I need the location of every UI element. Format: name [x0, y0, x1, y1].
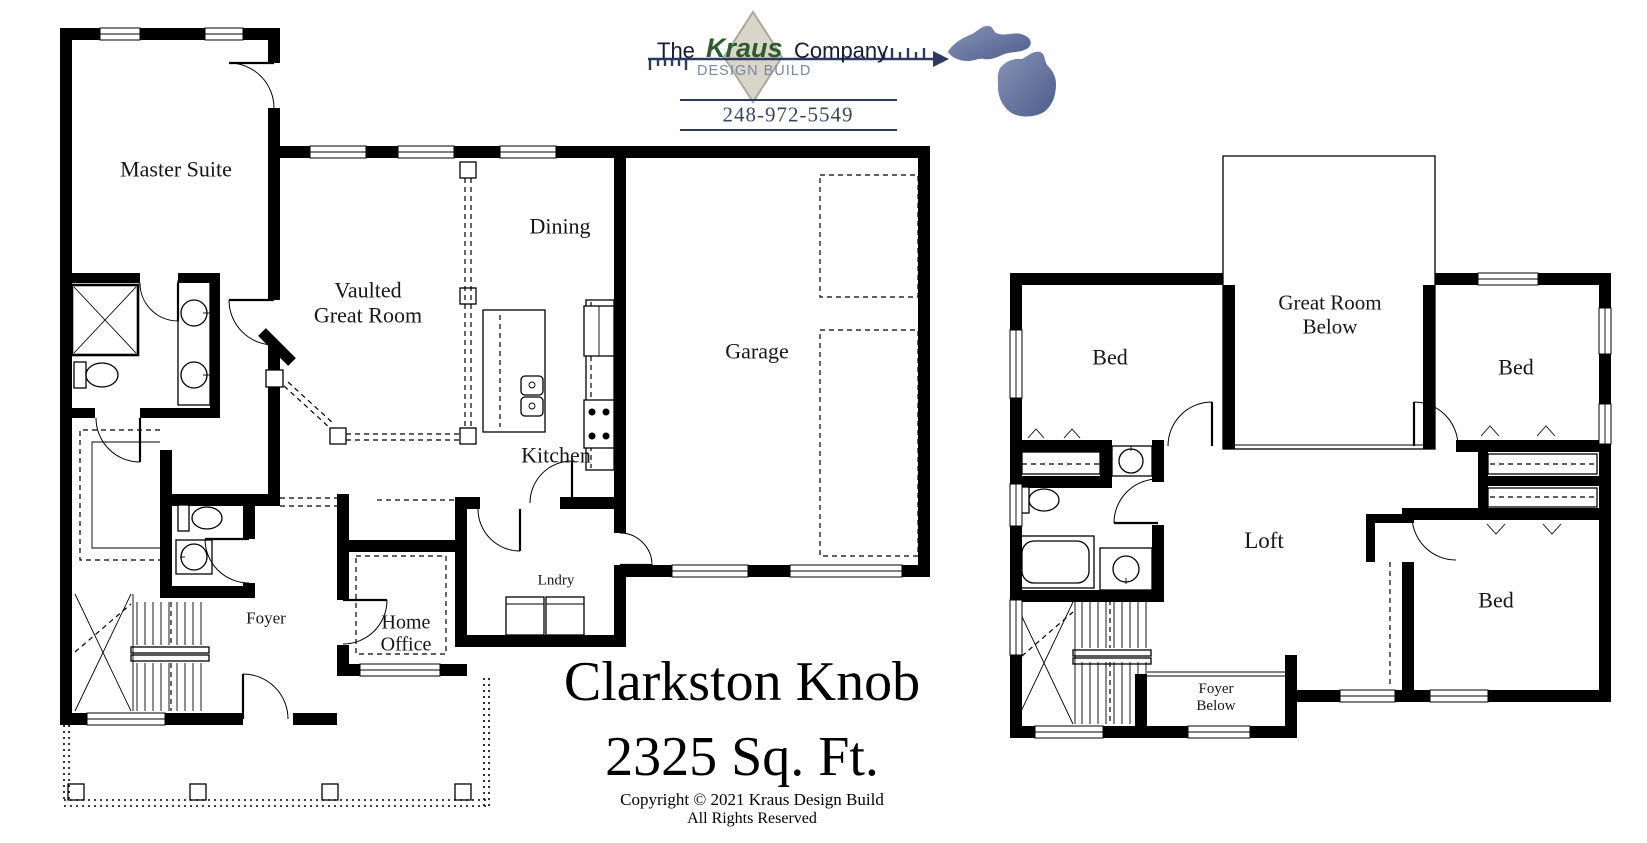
room-label-home-office: Home Office	[381, 612, 432, 657]
room-label-kitchen: Kitchen	[521, 444, 591, 469]
floor-plan-sheet: The Kraus Company DESIGN BUILD 248-972-5…	[0, 0, 1647, 843]
master-bath-fixtures	[72, 281, 210, 405]
second-floor-plan	[1010, 156, 1611, 738]
room-label-bed-top-right: Bed	[1498, 356, 1533, 381]
laundry-fixtures	[506, 597, 584, 635]
front-porch-outline	[64, 678, 489, 806]
room-label-great-room: Vaulted Great Room	[314, 278, 422, 327]
room-label-bed-bottom-right: Bed	[1478, 589, 1513, 614]
room-label-laundry: Lndry	[538, 573, 575, 590]
arrow-head-icon	[933, 51, 949, 67]
room-label-loft: Loft	[1244, 528, 1284, 554]
michigan-state-icon	[948, 26, 1056, 117]
room-label-dining: Dining	[529, 215, 590, 240]
second-floor-stairs	[1015, 600, 1151, 724]
first-floor-windows	[87, 28, 902, 725]
plan-area-title: 2325 Sq. Ft.	[605, 725, 879, 789]
room-label-foyer-below: Foyer Below	[1196, 681, 1235, 715]
plan-name-title: Clarkston Knob	[564, 650, 920, 714]
second-floor-doors	[1114, 402, 1458, 560]
brand-tagline: DESIGN BUILD	[697, 63, 811, 79]
brand-phone: 248-972-5549	[723, 103, 854, 128]
brand-the: The	[657, 38, 695, 64]
room-label-foyer: Foyer	[246, 608, 286, 627]
copyright-line: Copyright © 2021 Kraus Design Build	[620, 790, 884, 810]
rights-line: All Rights Reserved	[687, 810, 817, 828]
room-label-garage: Garage	[725, 340, 789, 365]
room-label-great-room-below: Great Room Below	[1278, 291, 1381, 338]
room-label-master-suite: Master Suite	[120, 158, 232, 183]
first-floor-stairs	[75, 594, 209, 711]
brand-kraus: Kraus	[706, 33, 783, 64]
second-floor-bath-fixtures	[1017, 446, 1152, 590]
brand-company: Company	[794, 38, 888, 64]
room-label-bed-left: Bed	[1092, 346, 1127, 371]
second-floor-windows	[1010, 273, 1611, 738]
